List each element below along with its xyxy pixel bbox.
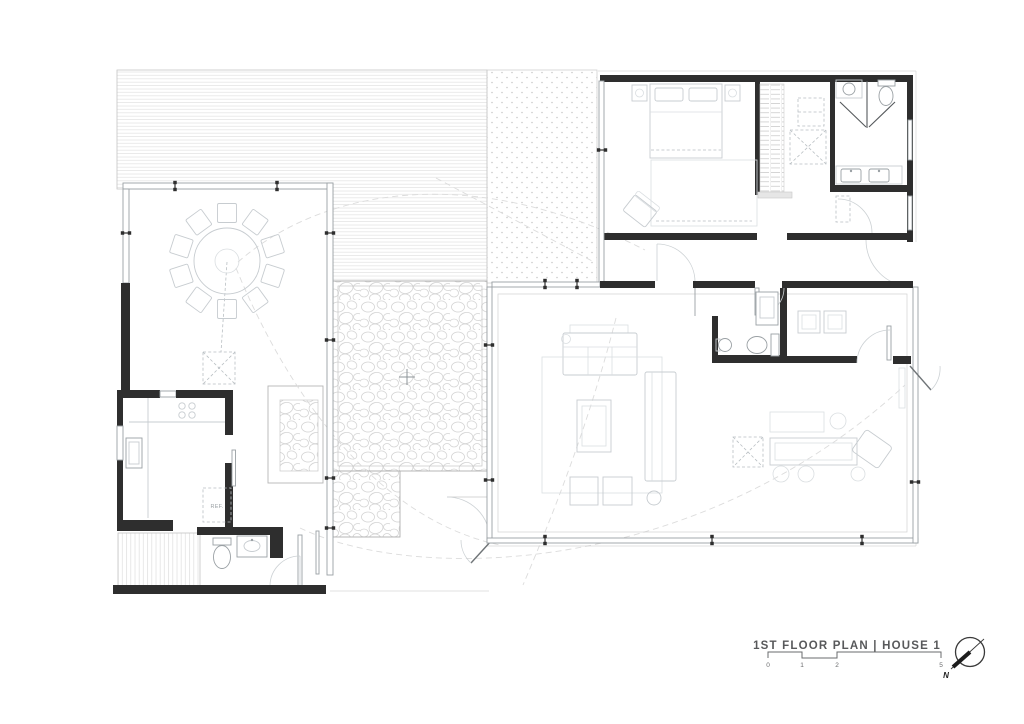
bedroom-rug [651,160,757,226]
dining-island-furniture [770,368,905,482]
master-bathroom [836,80,902,184]
base-wall [113,585,326,594]
shower-door [840,102,866,127]
toilet [213,538,231,569]
dining-chairs [169,204,284,319]
master-bed [650,84,722,158]
living-skylight [733,437,763,467]
refrigerator-label: REF. [210,504,223,510]
entry-door-leaf [316,531,319,574]
floor-plan-page: REF. [0,0,1024,724]
interior-bathroom [695,288,787,363]
lounge-chair [623,191,660,228]
lounge-furniture [542,325,676,505]
wall-basin [716,339,732,352]
closet-skylight [790,130,826,164]
bedroom-wing [599,75,913,287]
kitchen-sink [126,438,142,468]
kitchen-door-leaf [232,450,236,486]
study-room [787,311,911,364]
patio-stippled [487,70,597,283]
double-vanity [836,166,902,184]
sink [237,536,267,557]
kitchen-counter [129,398,225,518]
plan-title: 1ST FLOOR PLAN | HOUSE 1 [753,640,941,652]
dining-skylight [203,352,235,384]
title-block: 1ST FLOOR PLAN | HOUSE 1 0 1 2 5 N [753,638,984,681]
planter-pebble [268,386,323,483]
walk-in-closet [758,84,826,198]
living-wing [487,281,940,543]
deck-bottom [118,533,200,586]
dressing-room [836,196,872,233]
scale-label-2: 2 [835,662,839,669]
floor-plan-canvas: REF. [0,0,1024,724]
chaise [645,372,676,481]
courtyard-pebble [333,281,487,537]
nightstands [632,85,740,101]
corridor-doors [657,240,913,287]
study-door-leaf [887,326,891,360]
toilet [879,87,893,106]
toilet [747,334,779,356]
rug [542,357,662,493]
bathroom-vanity [756,292,778,325]
north-label: N [943,671,949,680]
scale-label-1: 1 [800,662,804,669]
kitchen: REF. [117,390,236,533]
scale-label-0: 0 [766,662,770,669]
bathroom-sink [843,83,855,95]
living-entry-door-leaf [471,540,492,563]
north-arrow-icon: N [943,638,984,681]
scale-bar: 0 1 2 5 [766,652,943,669]
deck-top [117,70,487,281]
scale-label-5: 5 [939,662,943,669]
dining-table [194,228,260,294]
